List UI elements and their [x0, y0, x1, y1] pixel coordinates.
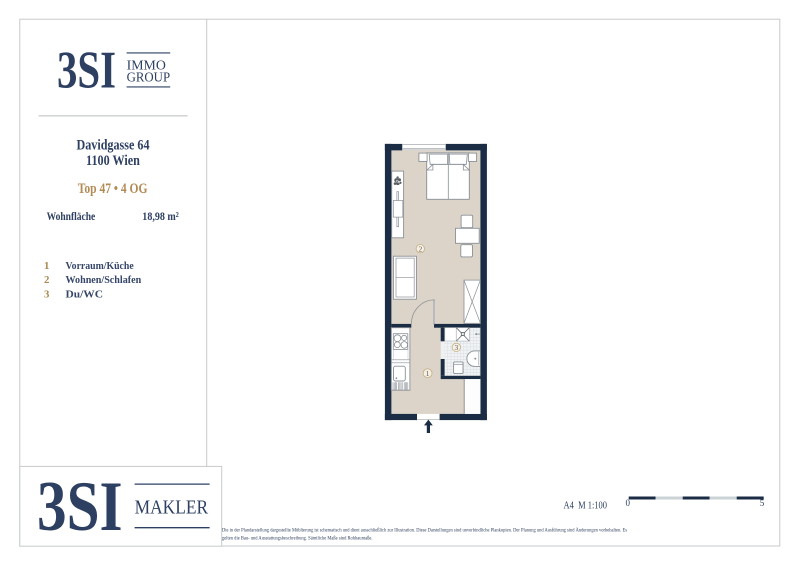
svg-text:Du/WC: Du/WC [66, 288, 104, 300]
svg-text:18,98 m²: 18,98 m² [142, 209, 179, 223]
svg-text:MAKLER: MAKLER [135, 498, 209, 519]
svg-text:Wohnfläche: Wohnfläche [47, 209, 96, 223]
svg-text:gelten die Bau- und Ausstattun: gelten die Bau- und Ausstattungsbeschrei… [222, 537, 373, 542]
svg-text:1: 1 [426, 369, 430, 378]
svg-text:3SI: 3SI [37, 468, 123, 546]
svg-text:1100 Wien: 1100 Wien [86, 153, 140, 169]
svg-text:Davidgasse 64: Davidgasse 64 [76, 137, 150, 153]
svg-text:5: 5 [760, 498, 765, 508]
svg-text:2: 2 [44, 274, 49, 286]
svg-text:1: 1 [44, 260, 49, 272]
svg-text:3SI: 3SI [57, 42, 116, 100]
svg-text:Vorraum/Küche: Vorraum/Küche [66, 260, 134, 272]
svg-text:2: 2 [418, 244, 422, 253]
svg-text:Wohnen/Schlafen: Wohnen/Schlafen [66, 274, 142, 286]
svg-text:A4 M 1:100: A4 M 1:100 [564, 501, 608, 512]
svg-text:GROUP: GROUP [127, 69, 171, 84]
svg-text:3: 3 [44, 288, 50, 300]
svg-text:0: 0 [626, 498, 631, 508]
svg-text:Top 47 • 4 OG: Top 47 • 4 OG [78, 181, 148, 197]
svg-text:3: 3 [454, 343, 458, 352]
svg-text:Die in der Plandarstellung dar: Die in der Plandarstellung dargestellte … [222, 528, 627, 534]
